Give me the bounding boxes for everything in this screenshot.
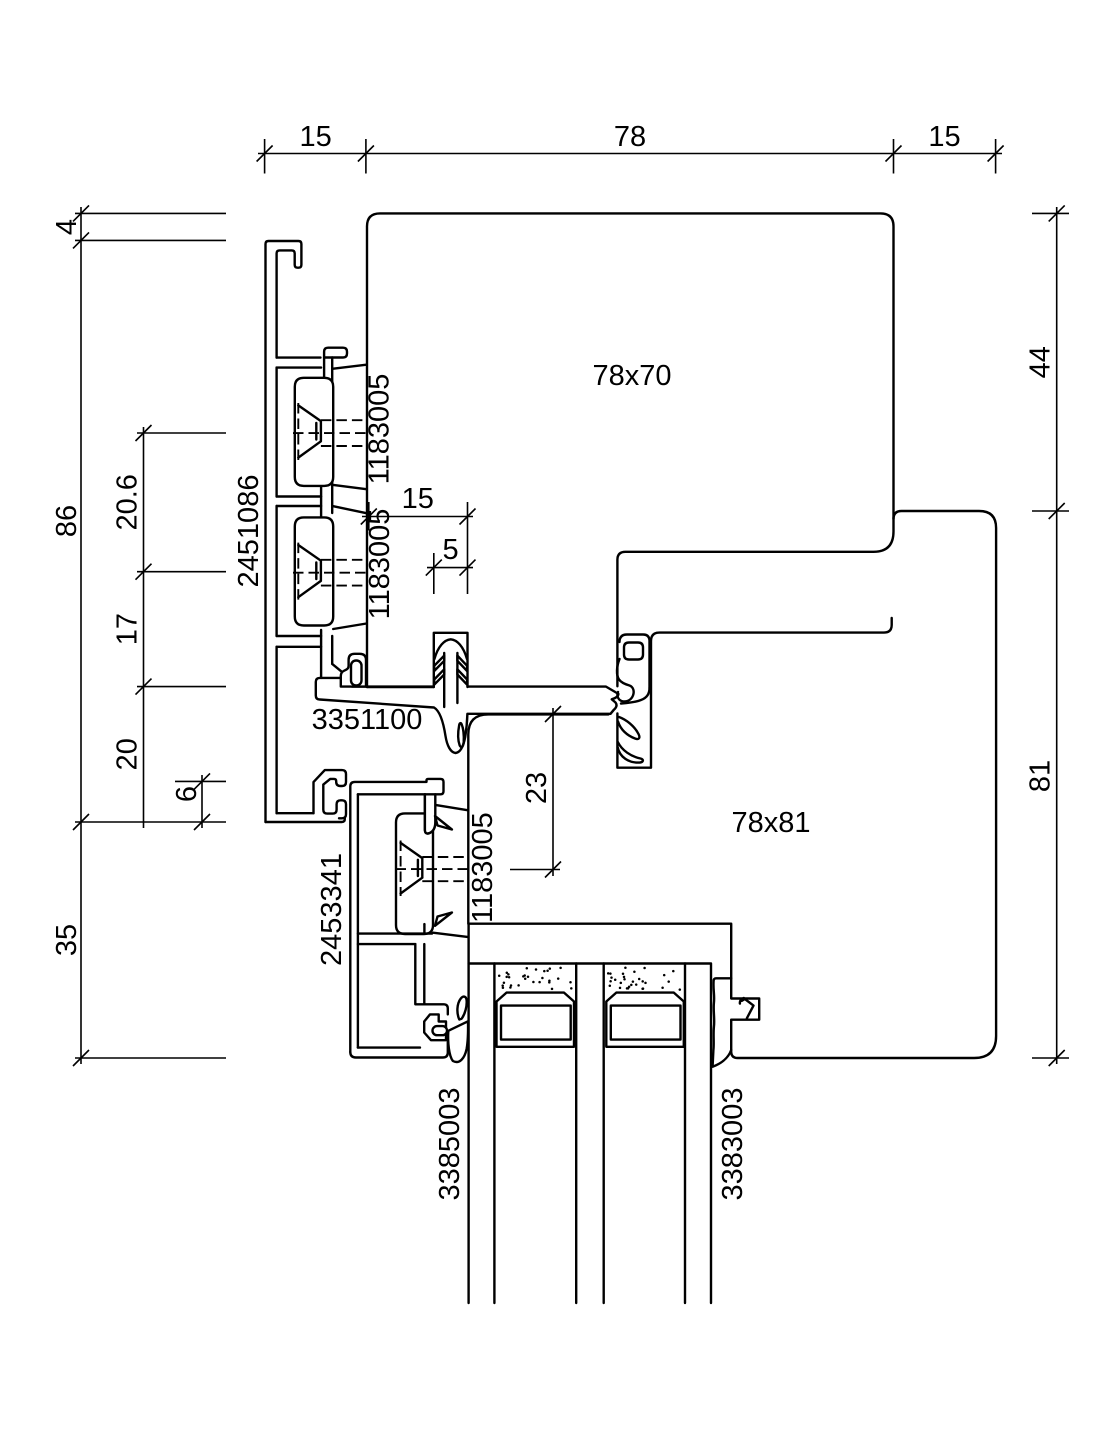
svg-text:20.6: 20.6 (112, 474, 144, 530)
svg-text:3385003: 3385003 (434, 1088, 466, 1201)
svg-text:78x70: 78x70 (592, 360, 671, 392)
svg-text:6: 6 (171, 786, 203, 802)
svg-text:1183005: 1183005 (364, 374, 396, 485)
svg-text:78: 78 (614, 121, 646, 153)
svg-text:1183005: 1183005 (467, 812, 499, 923)
svg-text:17: 17 (112, 613, 144, 645)
svg-text:35: 35 (51, 924, 83, 956)
svg-text:2453341: 2453341 (316, 853, 348, 966)
svg-text:5: 5 (443, 534, 459, 566)
svg-text:86: 86 (51, 505, 83, 537)
svg-text:3383003: 3383003 (717, 1088, 749, 1201)
svg-text:15: 15 (928, 121, 960, 153)
svg-text:23: 23 (521, 772, 553, 804)
svg-text:78x81: 78x81 (731, 807, 810, 839)
svg-text:44: 44 (1025, 346, 1057, 378)
svg-text:1183005: 1183005 (364, 509, 396, 620)
svg-text:3351100: 3351100 (312, 704, 423, 736)
svg-text:15: 15 (402, 483, 434, 515)
svg-text:4: 4 (51, 219, 83, 235)
svg-text:15: 15 (299, 121, 331, 153)
svg-text:2451086: 2451086 (233, 475, 265, 588)
svg-text:20: 20 (112, 738, 144, 770)
svg-text:81: 81 (1025, 760, 1057, 792)
